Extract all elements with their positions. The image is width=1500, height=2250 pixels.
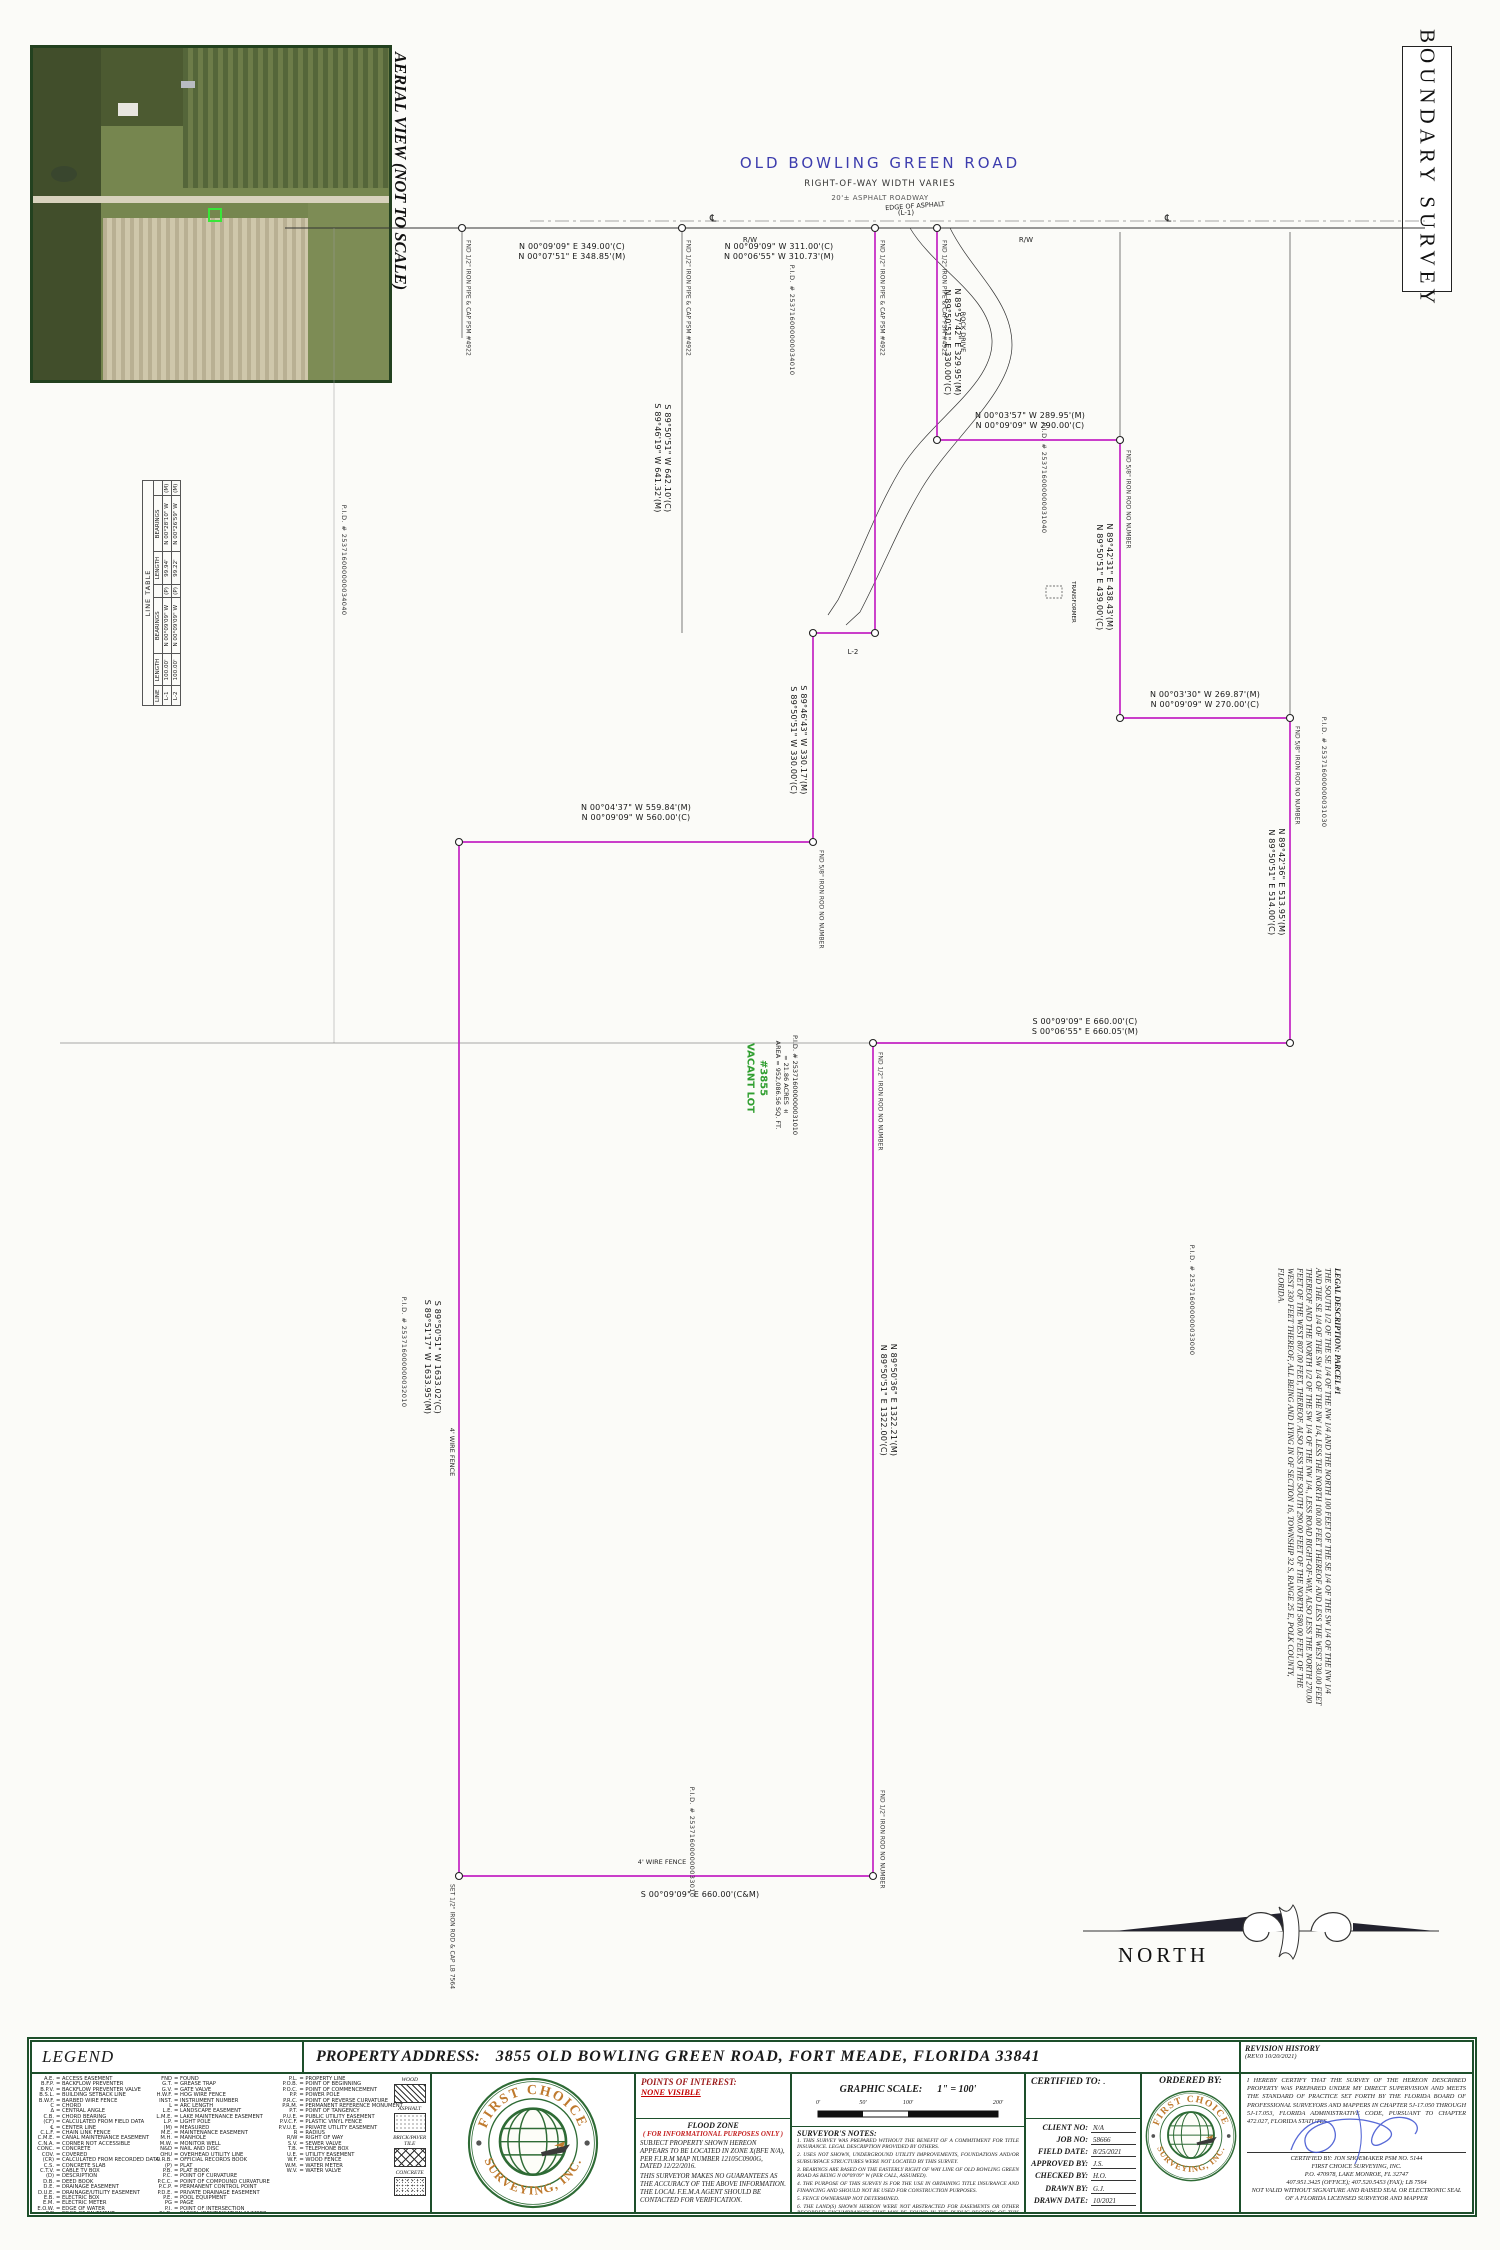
revision-history: REVISION HISTORY (REV.0 10/20/2021) — [1240, 2041, 1473, 2073]
line-table-title: LINE TABLE — [143, 481, 154, 706]
certification-line: P.O. 470978, LAKE MONROE, FL 32747 — [1247, 2171, 1466, 2179]
l2-label: L-2 — [848, 648, 859, 656]
ordered-by-label: ORDERED BY: — [1159, 2076, 1222, 2086]
legend-column-2: FND= FOUNDG.T.= GREASE TRAPG.V.= GATE VA… — [152, 2077, 275, 2209]
dimension-label: S 00°09'09" E 660.00'(C&M) — [641, 1890, 760, 1900]
certified-to-value: . — [1103, 2077, 1105, 2087]
legend-item: E/P= EDGE OF PAVEMENT — [34, 2212, 150, 2213]
line-table-header: LENGTH — [154, 654, 163, 686]
legend-column-1: A.E.= ACCESS EASEMENTB.F.P.= BACKFLOW PR… — [34, 2077, 150, 2209]
swatch-label: ASPHALT — [391, 2106, 428, 2112]
ordered-by-cell: ORDERED BY: FIRST CHOICE SURVEYING, INC. — [1141, 2073, 1240, 2213]
legend-item: P.I.D.= PARCEL IDENTIFICATION NUMBER — [152, 2212, 275, 2213]
monument-note: FND 5/8" IRON ROD NO NUMBER — [1124, 450, 1131, 549]
property-address-label: PROPERTY ADDRESS: — [316, 2048, 480, 2066]
client-info-row: APPROVED BY: J.S. — [1030, 2159, 1136, 2169]
pid-label: P.I.D. # 253716000000032010 — [400, 1297, 408, 1408]
flood-zone-title: FLOOD ZONE — [640, 2121, 786, 2130]
certified-client-cell: CERTIFIED TO: . CLIENT NO: N/A JOB NO: 5… — [1025, 2073, 1141, 2213]
line-table-header: BEARINGS — [154, 598, 163, 654]
monument-note: FND 5/8" IRON ROD NO NUMBER — [817, 850, 824, 949]
surveyor-signature — [1271, 2102, 1441, 2172]
company-logo-cell: FIRST CHOICE SURVEYING, INC. — [431, 2073, 635, 2213]
client-info-row: CHECKED BY: H.O. — [1030, 2171, 1136, 2181]
flood-zone-subtitle: ( FOR INFORMATIONAL PURPOSES ONLY ) — [640, 2130, 786, 2138]
line-table-header — [154, 481, 163, 496]
certification-cell: I HEREBY CERTIFY THAT THE SURVEY OF THE … — [1240, 2073, 1473, 2213]
dimension-label: N 89°42'36" E 513.95'(M)N 89°50'51" E 51… — [1266, 828, 1286, 935]
poi-value: NONE VISIBLE — [641, 2087, 785, 2097]
swatch-label: WOOD — [391, 2077, 428, 2083]
graphic-scale-value: 1" = 100' — [937, 2084, 976, 2095]
line-table-header-row: LINELENGTHBEARINGSLENGTHBEARINGS — [154, 481, 163, 706]
client-info-row: DRAWN DATE: 10/2021 — [1030, 2196, 1136, 2206]
wire-fence-label: 4' WIRE FENCE — [448, 1428, 456, 1476]
swatch-label: CONCRETE — [391, 2170, 428, 2176]
property-boundary — [459, 228, 1290, 1876]
monument-note: FND 1/2" IRON PIPE & CAP PSM #4922 — [684, 240, 691, 356]
transformer-label: TRANSFORMER — [1070, 581, 1076, 623]
scale-notes-cell: GRAPHIC SCALE: 1" = 100' 0' 50' 100' 200… — [791, 2073, 1025, 2213]
wire-fence-label: 4' WIRE FENCE — [638, 1858, 686, 1866]
monument-note: FND 1/2" IRON PIPE & CAP PSM #4922 — [464, 240, 471, 356]
pid-label: P.I.D. # 253716000000033000 — [1188, 1245, 1196, 1356]
monument-note: FND 1/2" IRON ROD NO NUMBER — [878, 1790, 885, 1889]
client-info-row: DRAWN BY: G.J. — [1030, 2184, 1136, 2194]
legend-item: W.V.= WATER VALVE — [277, 2169, 389, 2174]
certified-to-label: CERTIFIED TO: — [1031, 2077, 1101, 2087]
legal-description-title: LEGAL DESCRIPTION: PARCEL #1 — [1333, 1268, 1342, 1706]
surveyor-note: 3. BEARINGS ARE BASED ON THE EASTERLY RI… — [797, 2167, 1019, 2180]
revision-history-value: (REV.0 10/20/2021) — [1245, 2053, 1468, 2060]
monument-note: FND 1/2" IRON ROD NO NUMBER — [876, 1052, 883, 1151]
survey-drawing — [0, 0, 1500, 2010]
scale-bar: 0' 50' 100' 200' — [813, 2100, 1003, 2126]
brick-swatch — [394, 2148, 426, 2167]
line-table-header: BEARINGS — [154, 496, 163, 552]
surveyor-note: 4. THE PURPOSE OF THIS SURVEY IS FOR THE… — [797, 2181, 1019, 2194]
dimension-label: N 00°04'37" W 559.84'(M)N 00°09'09" W 56… — [581, 803, 691, 823]
pid-label: P.I.D. # 253716000000034010 — [788, 265, 796, 376]
centerline-icon: ℄ — [710, 214, 716, 225]
line-table: LINE TABLE LINELENGTHBEARINGSLENGTHBEARI… — [142, 480, 314, 706]
road-surface-note: 20'± ASPHALT ROADWAY — [831, 194, 928, 202]
dimension-label: N 89°50'36" E 1322.21'(M)N 89°50'51" E 1… — [878, 1344, 898, 1457]
wood-swatch — [394, 2084, 426, 2103]
dimension-label: N 00°09'09" W 311.00'(C)N 00°06'55" W 31… — [724, 242, 834, 262]
road-name: OLD BOWLING GREEN ROAD — [740, 154, 1020, 172]
legend-swatches: WOOD ASPHALT BRICK/PAVER TILE CONCRETE — [391, 2077, 428, 2209]
legend-title: LEGEND — [31, 2041, 303, 2073]
certification-line: NOT VALID WITHOUT SIGNATURE AND RAISED S… — [1247, 2187, 1466, 2195]
asphalt-swatch — [394, 2113, 426, 2132]
boundary-survey-sheet: { "sheet": { "title": "BOUNDARY SURVEY",… — [0, 0, 1500, 2250]
pid-label: P.I.D. # 253716000000034040 — [340, 505, 348, 616]
points-of-interest-cell: POINTS OF INTEREST: NONE VISIBLE FLOOD Z… — [635, 2073, 791, 2213]
pid-label: P.I.D. # 253716000000031030 — [1320, 717, 1328, 828]
line-table-header — [154, 584, 163, 598]
surveyors-notes-title: SURVEYOR'S NOTES: — [797, 2129, 1019, 2138]
surveyor-note: 1. THIS SURVEY WAS PREPARED WITHOUT THE … — [797, 2138, 1019, 2151]
road-row-note: RIGHT-OF-WAY WIDTH VARIES — [804, 179, 955, 189]
dimension-label: N 00°03'30" W 269.87'(M)N 00°09'09" W 27… — [1150, 690, 1260, 710]
lot-label: VACANT LOT — [745, 1043, 756, 1113]
monument-note: FND 5/8" IRON ROD NO NUMBER — [1293, 726, 1300, 825]
surveyors-notes: SURVEYOR'S NOTES: 1. THIS SURVEY WAS PRE… — [792, 2127, 1024, 2213]
client-info: CLIENT NO: N/A JOB NO: 58666 FIELD DATE:… — [1026, 2119, 1140, 2212]
line-table-row: L-1100.00'N 00°09'09" W (P)99.94'N 00°28… — [163, 481, 172, 706]
monument-note: FND 1/2" IRON PIPE & CAP PSM #4922 — [940, 240, 947, 356]
line-table-header: LINE — [154, 686, 163, 706]
first-choice-logo: FIRST CHOICE SURVEYING, INC. — [1145, 2090, 1237, 2182]
client-info-row: CLIENT NO: N/A — [1030, 2123, 1136, 2133]
surveyor-note: 5. FENCE OWNERSHIP NOT DETERMINED. — [797, 2196, 1019, 2202]
dimension-label: S 89°50'51" W 642.10'(C)S 89°46'19" W 64… — [652, 403, 672, 512]
pid-label: P.I.D. # 253716000000031040 — [1040, 423, 1048, 534]
lot-pid: P.I.D. # 253716000000031010 — [791, 1035, 799, 1135]
lot-area-acres: = 21.86 ACRES ± — [782, 1055, 790, 1115]
north-label: NORTH — [1118, 1943, 1209, 1968]
client-info-row: FIELD DATE: 8/25/2021 — [1030, 2147, 1136, 2157]
flood-zone-p2: THIS SURVEYOR MAKES NO GUARANTEES AS THE… — [640, 2173, 786, 2204]
title-block: LEGEND PROPERTY ADDRESS: 3855 OLD BOWLIN… — [27, 2037, 1477, 2217]
legend-list: A.E.= ACCESS EASEMENTB.F.P.= BACKFLOW PR… — [31, 2073, 431, 2213]
surveyor-note: 2. USES NOT SHOWN, UNDERGROUND UTILITY I… — [797, 2152, 1019, 2165]
property-address-value: 3855 OLD BOWLING GREEN ROAD, FORT MEADE,… — [496, 2048, 1041, 2066]
certification-line: 407.951.3425 (OFFICE); 407.520.5453 (FAX… — [1247, 2179, 1466, 2187]
revision-history-title: REVISION HISTORY — [1245, 2044, 1468, 2053]
rock-drive-path — [828, 228, 992, 615]
transformer-box — [1046, 586, 1062, 598]
graphic-scale-label: GRAPHIC SCALE: — [840, 2084, 923, 2095]
centerline-icon: ℄ — [1165, 214, 1171, 225]
legend-column-3: P.L.= PROPERTY LINEP.O.B.= POINT OF BEGI… — [277, 2077, 389, 2209]
monument-note: SET 1/2" IRON ROD & CAP LB 7564 — [448, 1884, 455, 1989]
certification-line: OF A FLORIDA LICENSED SURVEYOR AND MAPPE… — [1247, 2195, 1466, 2203]
swatch-label: BRICK/PAVER TILE — [391, 2135, 428, 2147]
concrete-swatch — [394, 2177, 426, 2196]
property-address: PROPERTY ADDRESS: 3855 OLD BOWLING GREEN… — [303, 2041, 1240, 2073]
flood-zone-p1: SUBJECT PROPERTY SHOWN HEREON APPEARS TO… — [640, 2140, 786, 2171]
lot-number: #3855 — [758, 1060, 769, 1096]
poi-label: POINTS OF INTEREST: — [641, 2077, 785, 2087]
legal-description: LEGAL DESCRIPTION: PARCEL #1 THE SOUTH 1… — [1246, 1268, 1342, 1706]
monument-note: FND 1/2" IRON PIPE & CAP PSM #4922 — [878, 240, 885, 356]
first-choice-logo: FIRST CHOICE SURVEYING, INC. — [467, 2077, 599, 2209]
dimension-label: N 89°42'31" E 438.43'(M)N 89°50'51" E 43… — [1094, 523, 1114, 630]
pid-label: P.I.D. # 253716000000033010 — [688, 1787, 696, 1898]
dimension-label: S 89°46'43" W 330.17'(M)S 89°50'51" W 33… — [788, 685, 808, 794]
dimension-label: S 89°50'51" W 1633.02'(C)S 89°51'17" W 1… — [422, 1300, 442, 1414]
dimension-label: N 00°03'57" W 289.95'(M)N 00°09'09" W 29… — [975, 411, 1085, 431]
dimension-label: N 00°09'09" E 349.00'(C)N 00°07'51" E 34… — [518, 242, 625, 262]
line-table-header: LENGTH — [154, 552, 163, 584]
flood-zone: FLOOD ZONE ( FOR INFORMATIONAL PURPOSES … — [636, 2119, 790, 2212]
surveyor-note: 6. THE LAND(S) SHOWN HEREON WERE NOT ABS… — [797, 2204, 1019, 2213]
lot-area-sqft: AREA = 952,086.56 SQ. FT. — [774, 1041, 782, 1130]
line-table-row: L-2100.00'N 00°09'09" W (P)99.22'N 00°26… — [172, 481, 181, 706]
l1-ref-label: (L-1) — [898, 209, 914, 217]
client-info-row: JOB NO: 58666 — [1030, 2135, 1136, 2145]
legal-description-body: THE SOUTH 1/2 OF THE SE 1/4 OF THE NW 1/… — [1276, 1268, 1333, 1706]
dimension-label: S 00°09'09" E 660.00'(C)S 00°06'55" E 66… — [1032, 1017, 1138, 1037]
rw-label: R/W — [1019, 236, 1033, 244]
